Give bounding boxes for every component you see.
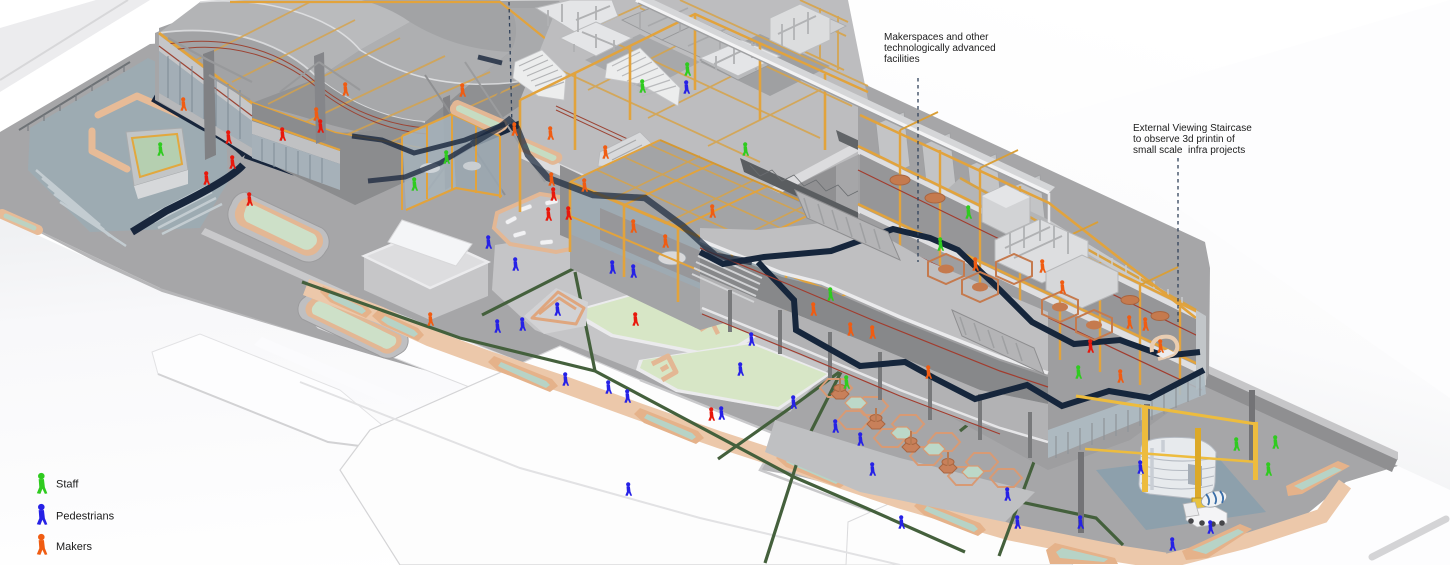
svg-text:Pedestrians: Pedestrians: [56, 511, 115, 523]
svg-text:Makerspaces and other: Makerspaces and other: [884, 32, 989, 43]
svg-text:small scale infra projects: small scale infra projects: [1133, 145, 1245, 156]
svg-text:External Viewing Staircase: External Viewing Staircase: [1133, 123, 1252, 134]
svg-text:technologically advanced: technologically advanced: [884, 43, 996, 54]
svg-text:Staff: Staff: [56, 479, 79, 491]
svg-text:facilities: facilities: [884, 54, 920, 65]
svg-text:Makers: Makers: [56, 541, 93, 553]
svg-text:to observe 3d printin of: to observe 3d printin of: [1133, 134, 1235, 145]
